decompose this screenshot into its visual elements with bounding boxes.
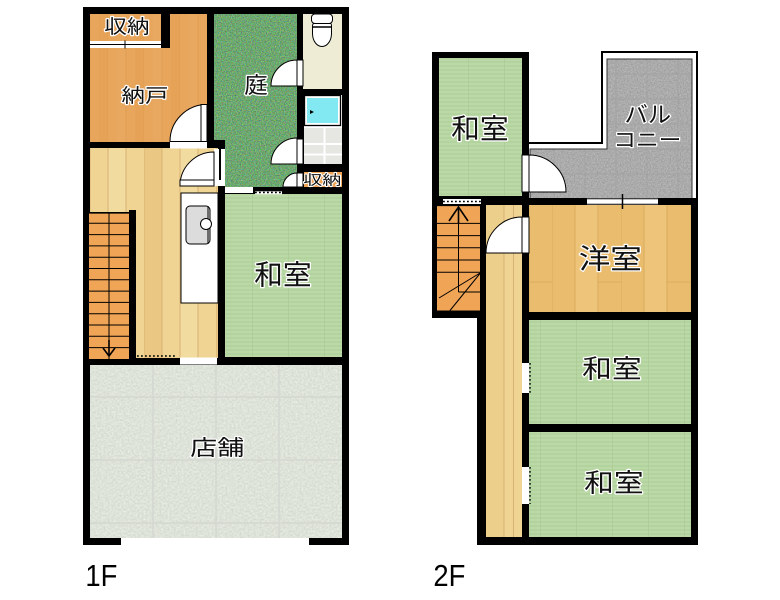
- svg-text:1F: 1F: [85, 558, 117, 593]
- svg-text:2F: 2F: [433, 558, 465, 593]
